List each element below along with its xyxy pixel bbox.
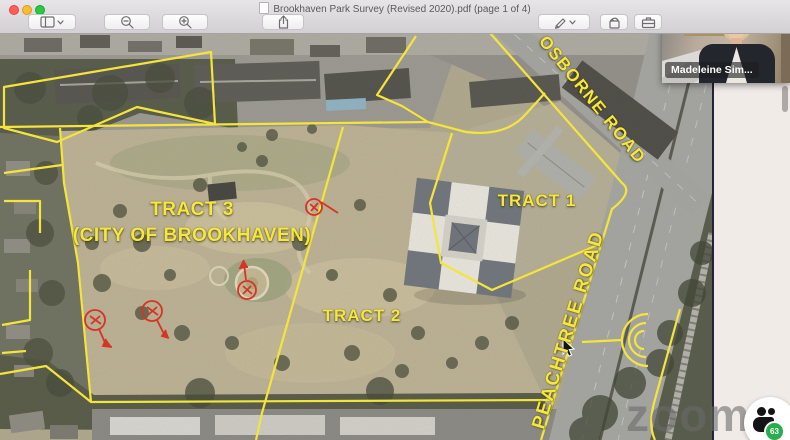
tract1-label: TRACT 1	[498, 191, 577, 211]
person-silhouette-icon	[757, 407, 766, 416]
share-icon	[276, 15, 291, 30]
page-margin	[712, 33, 790, 440]
pdf-document-area[interactable]: TRACT 3 (CITY OF BROOKHAVEN) TRACT 1 TRA…	[0, 33, 790, 440]
rotate-button[interactable]	[600, 14, 628, 30]
zoom-in-icon	[178, 15, 193, 30]
participant-name-label: Madeleine Sim...	[665, 62, 759, 78]
viewer-count: 63	[764, 421, 785, 440]
share-button[interactable]	[262, 14, 304, 30]
zoom-out-button[interactable]	[104, 14, 150, 30]
document-proxy-icon	[259, 2, 269, 14]
scrollbar-thumb[interactable]	[782, 86, 788, 112]
tract3-label-line1: TRACT 3	[150, 199, 234, 221]
markup-pen-button[interactable]	[538, 14, 590, 30]
rotate-left-icon	[607, 15, 622, 30]
window-titlebar: Brookhaven Park Survey (Revised 2020).pd…	[0, 0, 790, 34]
sidebar-view-button[interactable]	[28, 14, 76, 30]
chevron-down-icon	[57, 20, 64, 25]
markup-toolbox-icon	[641, 15, 656, 29]
tract3-label-line2: (CITY OF BROOKHAVEN)	[73, 225, 311, 247]
markup-toolbox-button[interactable]	[634, 14, 662, 30]
sidebar-view-icon	[40, 16, 55, 28]
person-silhouette-icon	[768, 408, 775, 415]
chevron-down-icon	[569, 20, 576, 25]
app-window: Brookhaven Park Survey (Revised 2020).pd…	[0, 0, 790, 440]
zoom-out-icon	[120, 15, 135, 30]
markup-pen-icon	[553, 15, 567, 29]
zoom-watermark: zoom	[626, 388, 750, 440]
tract2-label: TRACT 2	[323, 306, 402, 326]
viewer-count-badge[interactable]: 63	[744, 397, 790, 440]
zoom-in-button[interactable]	[162, 14, 208, 30]
